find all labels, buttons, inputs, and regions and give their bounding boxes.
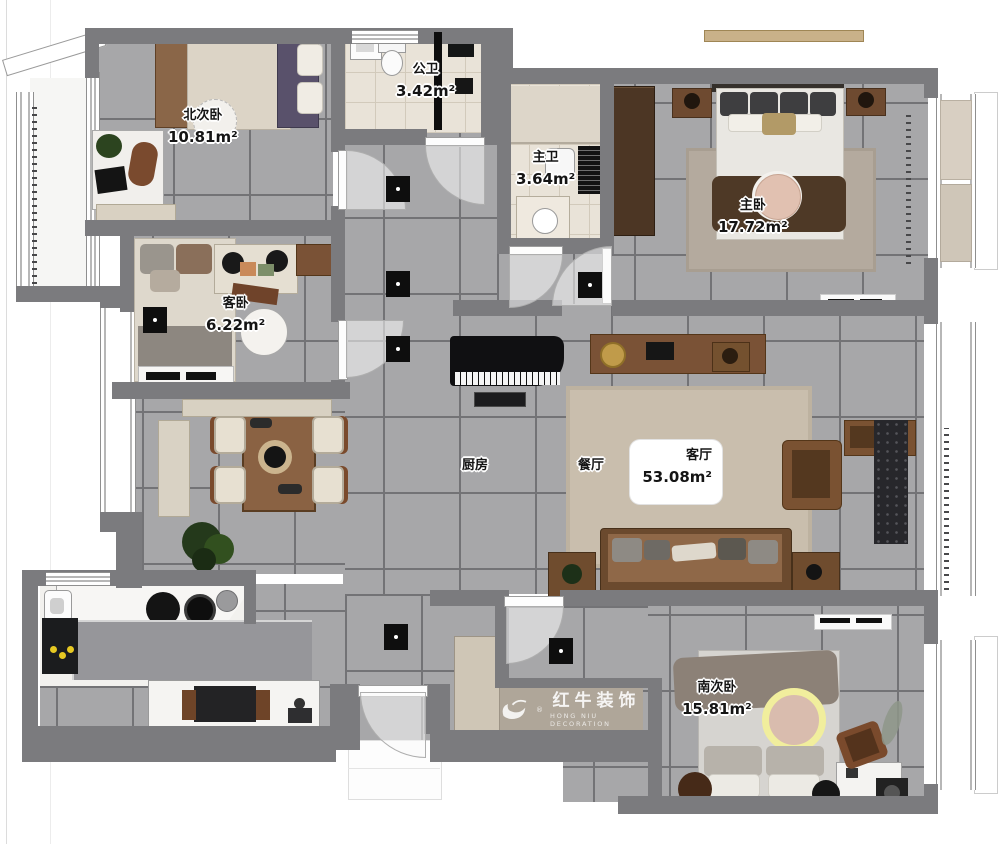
plate [250, 418, 272, 428]
desk-item [846, 768, 858, 778]
curtain-squiggle [906, 112, 911, 264]
side-table-plant [562, 564, 582, 584]
wall [481, 28, 497, 145]
room-label-south-bedroom: 南次卧 15.81m² [682, 678, 752, 721]
floor-plant [192, 548, 216, 572]
room-label-kitchen: 厨房 [462, 456, 488, 476]
wall [497, 68, 511, 254]
room-area: 3.42m² [396, 80, 455, 103]
watermark-name: 红牛装饰 [553, 692, 641, 711]
living-bay-window [936, 322, 976, 596]
window [352, 30, 418, 44]
dining-chair [312, 466, 344, 504]
island-corner [288, 708, 312, 723]
dining-bay-window [100, 306, 136, 524]
wall [112, 382, 350, 399]
pillow [176, 244, 212, 274]
tv-bar [820, 618, 850, 623]
room-name: 公卫 [396, 60, 455, 80]
room-area: 15.81m² [682, 698, 752, 721]
wood-pergola-bar [704, 30, 864, 42]
balcony-plants [32, 104, 37, 284]
room-area: 53.08m² [640, 466, 712, 489]
room-area: 6.22m² [206, 314, 265, 337]
pillow [612, 538, 642, 562]
dining-chair [214, 416, 246, 454]
outer-sill [974, 92, 998, 270]
room-name: 餐厅 [578, 456, 604, 476]
room-label-living-box: 客厅 53.08m² [630, 440, 722, 504]
tv-bar [856, 618, 882, 623]
pillow [748, 540, 778, 564]
room-name: 厨房 [462, 456, 488, 476]
wall [330, 684, 360, 750]
pot [216, 590, 238, 612]
spotlight-marker [386, 176, 410, 202]
basket [600, 342, 626, 368]
ring-light [762, 688, 826, 752]
desk-item [258, 264, 274, 276]
wall [648, 678, 662, 804]
island-cooktop [194, 686, 256, 722]
side-table-item [806, 564, 822, 580]
registered-mark: ® [536, 706, 543, 714]
wall [345, 129, 427, 145]
room-label-guest-bedroom: 客卧 6.22m² [206, 294, 265, 337]
lemon [67, 646, 74, 653]
pillow [810, 92, 836, 116]
vanity-basin [532, 208, 558, 234]
room-label-dining: 餐厅 [578, 456, 604, 476]
console-item [646, 342, 674, 360]
master-wardrobe [613, 86, 655, 236]
outer-sill [974, 636, 998, 794]
room-name: 主卧 [718, 196, 788, 216]
room-area: 10.81m² [168, 126, 238, 149]
nightstand-lamp [684, 93, 700, 109]
towel-radiator [578, 146, 600, 194]
sink-basin [50, 598, 64, 614]
pillow [720, 92, 748, 116]
shower-area [501, 86, 600, 144]
wall [612, 300, 938, 316]
room-label-public-bath: 公卫 3.42m² [396, 60, 455, 103]
pillow [708, 774, 760, 798]
armchair-cushion [792, 450, 830, 498]
tv-bar [186, 372, 216, 380]
floor-balcony-left [30, 78, 92, 290]
room-label-north-bedroom: 北次卧 10.81m² [168, 106, 238, 149]
watermark-name-en: HONG NIU DECORATION [550, 712, 643, 728]
pillow [704, 746, 762, 776]
wall [924, 592, 938, 644]
laptop [94, 166, 127, 194]
window [46, 572, 110, 586]
room-label-master-bath: 主卫 3.64m² [516, 148, 575, 191]
lemon [59, 652, 66, 659]
wall [331, 380, 345, 399]
curtain-squiggle [944, 428, 949, 590]
tea-set [722, 348, 738, 364]
kitchen-cabinet-run [72, 620, 312, 680]
page-edge-line [6, 0, 7, 844]
spotlight-marker [386, 271, 410, 297]
accent-cushion [762, 113, 796, 135]
watermark-brand: ® 红牛装饰 HONG NIU DECORATION [499, 686, 643, 734]
dining-chair [312, 416, 344, 454]
pillow [150, 270, 180, 292]
spotlight-marker [386, 336, 410, 362]
hongniu-bull-logo [499, 697, 529, 723]
entry-step-line [348, 768, 440, 769]
spotlight-marker [143, 307, 167, 333]
pillow [718, 538, 746, 560]
spotlight-marker [384, 624, 408, 650]
floor-plan-canvas: 北次卧 10.81m² 公卫 3.42m² 主卫 3.64m² 主卧 17.72… [0, 0, 1000, 844]
pillow [644, 540, 670, 560]
piano-bench [474, 392, 526, 407]
pillow [297, 44, 323, 76]
desk-item [240, 262, 256, 276]
room-label-master-bedroom: 主卧 17.72m² [718, 196, 788, 239]
dining-chair [214, 466, 246, 504]
nightstand-lamp [858, 92, 874, 108]
island-wood-panel [256, 690, 270, 720]
wall [618, 796, 938, 814]
bay-cushion [940, 100, 972, 180]
room-name: 南次卧 [682, 678, 752, 698]
wall [22, 726, 336, 762]
room-name: 客卧 [206, 294, 265, 314]
wall [331, 236, 345, 322]
lemon [50, 646, 57, 653]
room-area: 3.64m² [516, 168, 575, 191]
island-wood-panel [182, 690, 196, 720]
room-name: 北次卧 [168, 106, 238, 126]
wall [924, 84, 938, 98]
centerpiece-bowl [264, 446, 286, 468]
tv-bar [146, 372, 180, 380]
plate [278, 484, 302, 494]
wall [244, 570, 256, 624]
wall [85, 28, 99, 78]
wall [453, 300, 562, 316]
wall [924, 784, 938, 802]
sideboard [182, 399, 332, 417]
wall [331, 28, 345, 152]
wall [560, 590, 938, 606]
desk-plant [96, 134, 122, 158]
wall [924, 258, 938, 324]
room-area: 17.72m² [718, 216, 788, 239]
shoe-cabinet [454, 636, 500, 734]
wall [430, 590, 502, 606]
wall [100, 296, 134, 308]
spotlight-marker [549, 638, 573, 664]
piano-keys [454, 372, 560, 385]
wall [497, 68, 938, 84]
room-name: 客厅 [640, 446, 712, 466]
tv-cabinet [874, 420, 908, 544]
pillow [766, 746, 824, 776]
wall [134, 570, 256, 586]
wall [600, 84, 614, 242]
wall [497, 28, 513, 72]
wall [430, 730, 650, 762]
tall-cabinet [158, 420, 190, 517]
pillow [297, 82, 323, 114]
bay-cushion [940, 184, 972, 262]
spotlight-marker [578, 272, 602, 298]
south-bay-window [936, 640, 976, 790]
water-heater [455, 78, 473, 94]
room-name: 主卫 [516, 148, 575, 168]
